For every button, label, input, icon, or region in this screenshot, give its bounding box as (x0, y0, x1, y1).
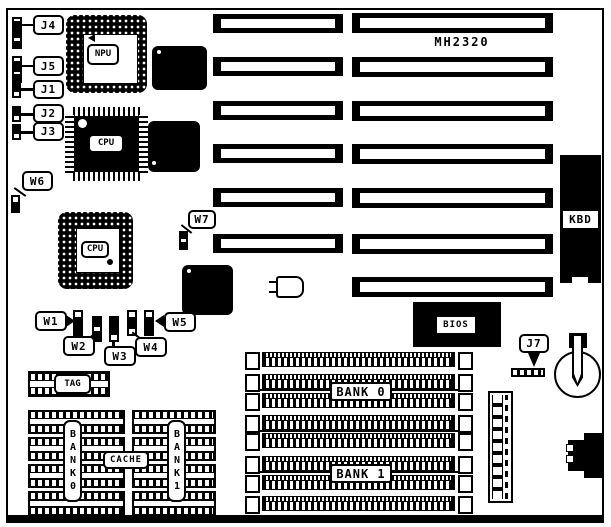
cpu-qfp-chip: CPU (65, 107, 148, 181)
w5-label: W5 (164, 312, 196, 332)
isa-slot-right-4 (352, 144, 553, 164)
power-connector (488, 391, 513, 503)
w4-label: W4 (135, 337, 167, 357)
motherboard-diagram: MH2320 J4 J5 J1 J2 J3 W6 NPU CPU (0, 0, 611, 527)
pin1-arrow-icon (88, 34, 95, 42)
w5-pointer (155, 315, 164, 327)
isa-slot-right-3 (352, 101, 553, 121)
power-plug-pin (566, 455, 574, 463)
j7-jumper (511, 368, 545, 377)
j2-pin-header (12, 106, 21, 122)
ic-chip-3 (182, 265, 233, 315)
j3-pin-header (12, 124, 21, 140)
pin1-dot (107, 259, 113, 265)
crystal-lead (269, 291, 276, 293)
npu-socket: NPU (66, 15, 147, 93)
simm-socket-4 (262, 415, 455, 430)
kbd-label: KBD (563, 211, 598, 228)
w1-label: W1 (35, 311, 67, 331)
j2-label: J2 (33, 104, 64, 123)
pin1-dot (187, 269, 191, 273)
simm-socket-8 (262, 496, 455, 511)
kbd-connector: KBD (560, 155, 601, 283)
j7-label: J7 (519, 334, 549, 353)
j4-pin-header (12, 17, 22, 49)
board-model: MH2320 (432, 35, 492, 49)
crystal-lead (269, 281, 276, 283)
j5-label: J5 (33, 56, 64, 76)
j3-label: J3 (33, 122, 64, 141)
crystal-oscillator (276, 276, 304, 298)
w2-label: W2 (63, 336, 95, 356)
ic-chip-2 (148, 121, 200, 172)
qfp-pins-bottom (73, 172, 140, 181)
ic-chip-1 (152, 46, 207, 90)
qfp-pins-right (139, 115, 148, 173)
pin1-dot (157, 50, 161, 54)
w3-label: W3 (104, 346, 136, 366)
qfp-pins-left (65, 115, 74, 173)
bank1-dip-label: BANK1 (167, 420, 186, 502)
simm-bank1-label: BANK 1 (330, 464, 392, 483)
bios-label: BIOS (436, 316, 476, 334)
cpu-pga-socket: CPU (58, 212, 133, 289)
w3-jumper (109, 316, 119, 342)
simm-socket-5 (262, 433, 455, 448)
isa-slot-right-2 (352, 57, 553, 77)
isa-slot-left-1 (213, 14, 343, 33)
bios-chip: BIOS (413, 302, 501, 347)
j5-pin-header (12, 56, 22, 83)
j1-pin-header (12, 82, 21, 98)
w5-jumper (144, 310, 154, 336)
cpu-pga-label: CPU (81, 241, 109, 258)
npu-label: NPU (87, 44, 119, 65)
tag-label: TAG (54, 374, 91, 394)
w1-pointer (66, 315, 75, 327)
bank0-dip-label: BANK0 (63, 420, 82, 502)
simm-socket-1 (262, 352, 455, 367)
isa-slot-right-1 (352, 13, 553, 33)
simm-divider (245, 430, 472, 432)
isa-slot-left-2 (213, 57, 343, 76)
qfp-pins-top (73, 107, 140, 116)
isa-slot-left-3 (213, 101, 343, 120)
cpu-qfp-label: CPU (88, 134, 124, 153)
isa-slot-right-5 (352, 188, 553, 208)
pin1-dot (152, 161, 156, 165)
w7-pin-header (179, 231, 188, 250)
isa-slot-left-6 (213, 234, 343, 253)
power-plug-pin (566, 444, 574, 452)
cache-label: CACHE (103, 451, 149, 469)
j4-label: J4 (33, 15, 64, 35)
isa-slot-left-5 (213, 188, 343, 207)
tag-chip: TAG (28, 371, 110, 397)
j1-label: J1 (33, 80, 64, 99)
isa-slot-left-4 (213, 144, 343, 163)
pin1-dot (78, 119, 87, 128)
w6-pin-header (11, 195, 20, 213)
j7-pointer (528, 353, 540, 367)
simm-bank0-label: BANK 0 (330, 382, 392, 401)
w7-label: W7 (188, 210, 216, 229)
isa-slot-right-6 (352, 234, 553, 254)
battery-terminal-core (574, 336, 581, 383)
w6-label: W6 (22, 171, 53, 191)
kbd-notch (572, 277, 588, 283)
isa-slot-right-7 (352, 277, 553, 297)
power-plug (584, 433, 604, 478)
